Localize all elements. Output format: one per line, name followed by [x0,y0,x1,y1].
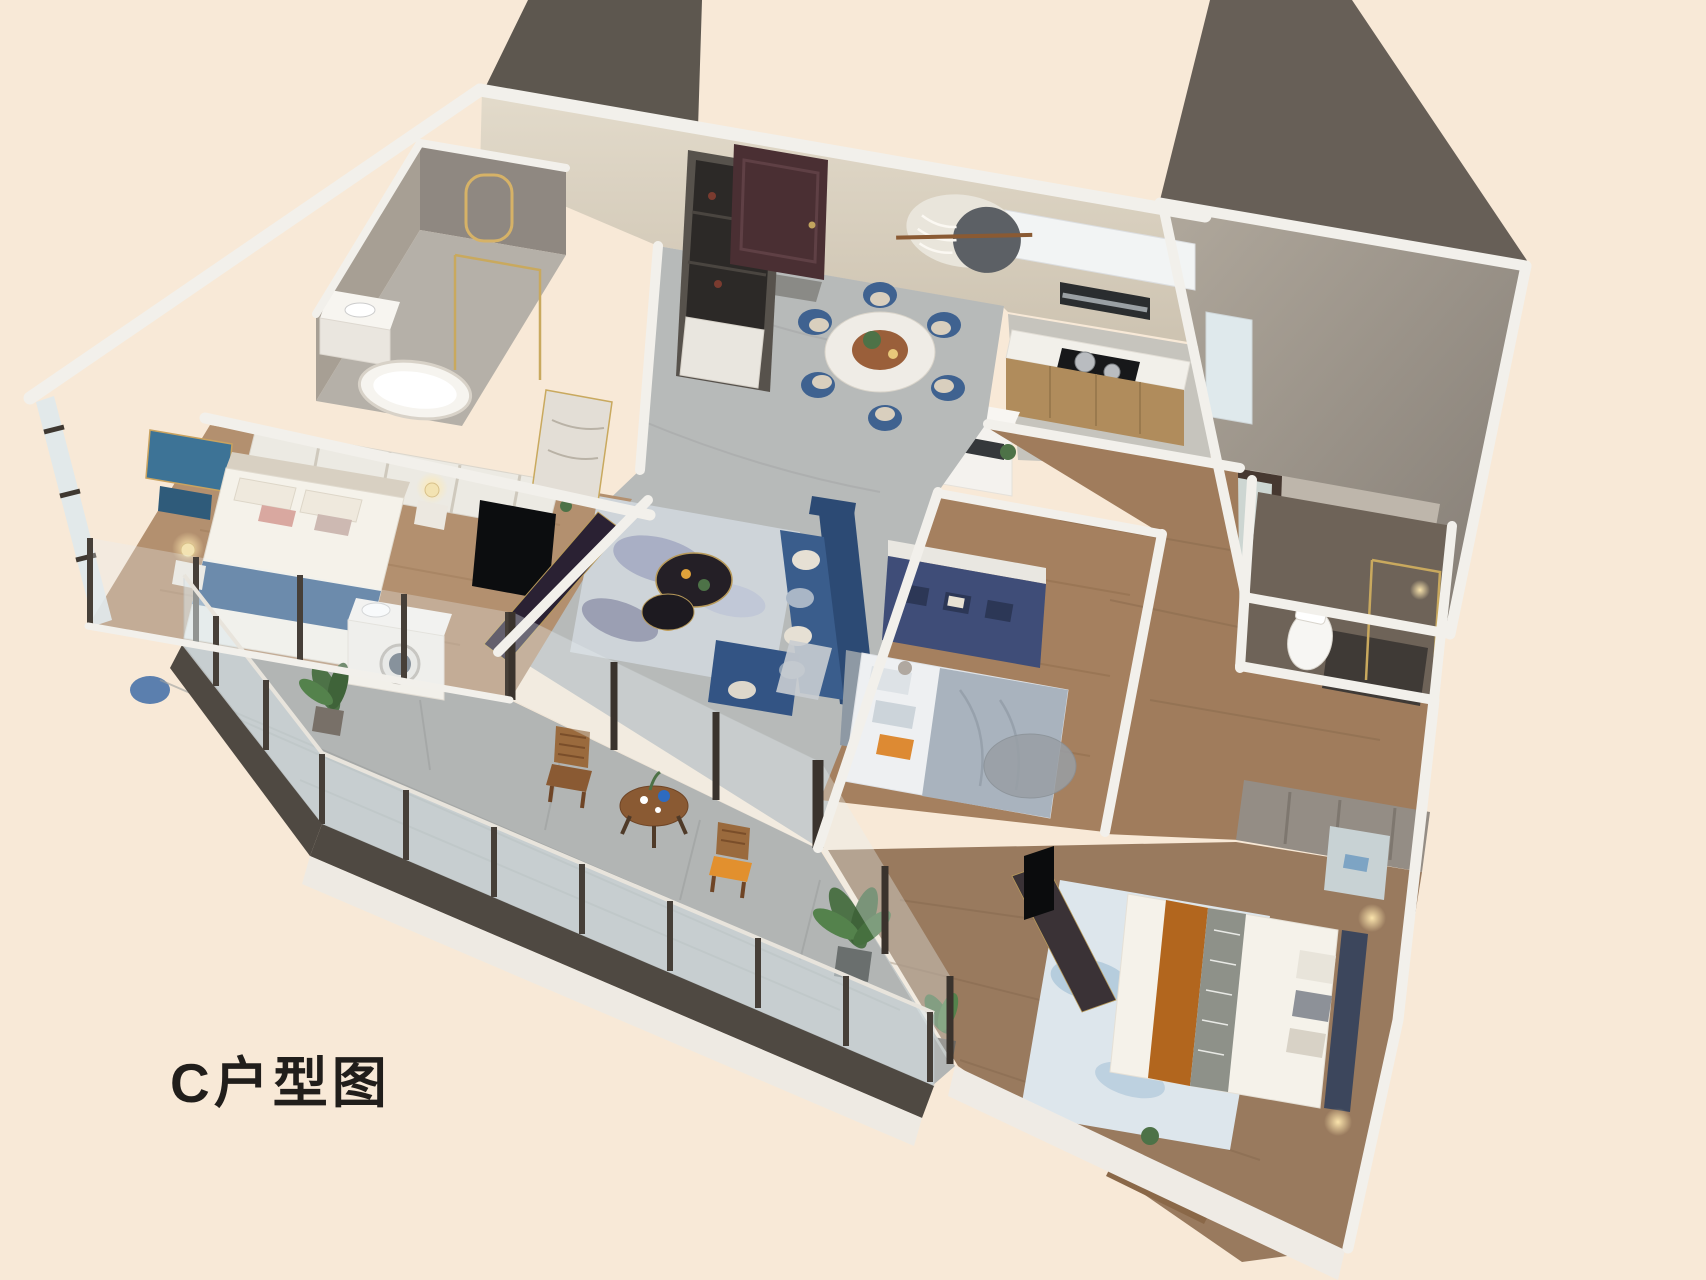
pillow [1296,950,1336,984]
pot [1075,352,1095,372]
table-decor [681,569,691,579]
cup [655,807,661,813]
table-dish [888,349,898,359]
sofa-pillow [792,550,820,570]
dining-chair [868,405,902,431]
table-lamp [425,483,439,497]
dining-chair [798,309,832,335]
teddy-bear [898,661,912,675]
dining-chair [801,372,835,398]
table-flowers [698,579,710,591]
sofa-pillow [728,681,756,699]
lamp-glow [1358,904,1386,932]
table-plant [863,331,881,349]
cup [640,796,648,804]
door-handle [809,222,816,229]
coffee-table-small [642,594,694,630]
sink-basin [345,303,375,317]
kitchen-window [1206,312,1252,424]
sofa-pillow [786,588,814,608]
dining-chair [931,375,965,401]
marble-art-panel [532,390,612,502]
floorplan-render-c: C户型图 [0,0,1706,1280]
bottle [714,280,722,288]
dining-chair [927,312,961,338]
isometric-floorplan: C户型图 [0,0,1706,1280]
accent-chair [130,676,170,704]
bottle [708,192,716,200]
sideboard-plant [1141,1127,1159,1145]
lamp-glow [1324,1108,1352,1136]
hall-plant [1000,444,1016,460]
watering-can [658,790,670,802]
round-rug [984,734,1076,798]
wine-cabinet-base [680,317,764,388]
shower-light [1410,580,1430,600]
plant-pot [312,706,344,736]
plan-title-label: C户型图 [170,1052,391,1114]
guest-tv [1024,846,1054,920]
dining-chair [863,282,897,308]
